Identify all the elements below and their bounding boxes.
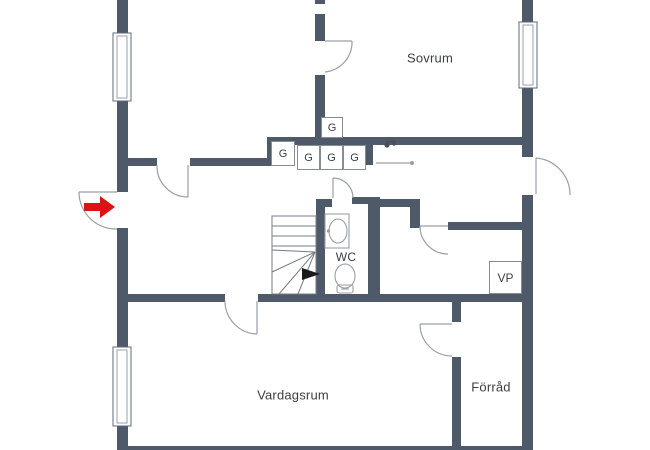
wall-segment <box>316 200 325 295</box>
wall-segment <box>315 0 325 4</box>
closet-label: G <box>304 152 313 164</box>
closet-label: G <box>327 152 336 164</box>
wall-segment <box>452 301 461 322</box>
window <box>113 347 131 426</box>
wall-segment <box>522 0 533 22</box>
closet-label: G <box>350 152 359 164</box>
wall-segment <box>117 446 533 450</box>
wall-segment <box>522 87 533 157</box>
room-door <box>157 165 188 197</box>
closet-box: G <box>321 117 343 138</box>
floorplan-drawing <box>0 0 650 450</box>
closet-label: G <box>279 148 288 160</box>
closet-label: G <box>328 122 337 134</box>
sink-icon <box>325 214 349 248</box>
living-room-door <box>225 301 257 334</box>
heating-unit-label: VP <box>497 271 513 285</box>
closet-box: G <box>297 145 320 170</box>
window <box>113 33 131 101</box>
bedroom-door <box>325 41 352 72</box>
bedroom-label: Sovrum <box>407 51 453 66</box>
exterior-door-right <box>536 158 570 195</box>
wall-segment <box>117 228 128 347</box>
wall-segment <box>125 158 157 166</box>
wall-segment <box>452 357 461 450</box>
opening-annotation-line <box>376 161 414 165</box>
wall-segment <box>410 207 420 228</box>
wall-segment <box>448 222 522 230</box>
wall-segment <box>380 199 420 207</box>
entrance-arrow-icon <box>84 196 115 218</box>
storage-label: Förråd <box>471 380 511 395</box>
floorplan-canvas: G G G G G VP Sovrum WC Vardagsrum Förråd <box>0 0 650 450</box>
wall-segment <box>258 294 523 302</box>
wall-segment <box>190 158 273 166</box>
wall-segment <box>315 14 325 41</box>
wall-segment <box>117 0 128 33</box>
window <box>519 22 537 88</box>
closet-box: G <box>343 145 366 170</box>
wall-segment <box>352 197 369 204</box>
storage-door <box>420 324 452 356</box>
closet-box: G <box>271 141 295 166</box>
wall-segment <box>117 294 225 302</box>
living-room-label: Vardagsrum <box>257 388 329 403</box>
heating-unit-box: VP <box>489 261 522 294</box>
wall-segment <box>365 145 373 165</box>
wc-label: WC <box>336 250 356 264</box>
wall-segment <box>117 100 128 192</box>
wc-door <box>333 178 353 198</box>
closet-box: G <box>320 145 343 170</box>
staircase <box>272 216 320 294</box>
vp-room-door <box>420 226 448 254</box>
wall-segment <box>368 197 380 298</box>
toilet-icon <box>335 264 355 293</box>
wall-segment <box>522 195 533 450</box>
